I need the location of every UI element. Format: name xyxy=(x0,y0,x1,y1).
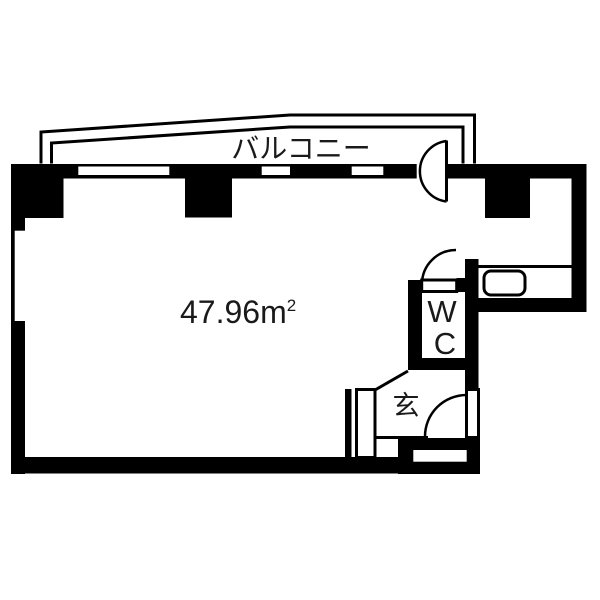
pier-middle xyxy=(185,164,232,218)
front-door-leaf xyxy=(467,390,479,438)
pier-right xyxy=(485,164,530,218)
wc-label-c: C xyxy=(434,326,456,361)
kitchen-sink xyxy=(484,271,525,295)
floor-plan: バルコニー 47.96m2 W C 玄 xyxy=(0,0,600,600)
wc-left-wall xyxy=(408,280,422,370)
entrance-label: 玄 xyxy=(393,391,420,421)
area-exponent: 2 xyxy=(287,296,296,315)
kitchen-south-wall xyxy=(478,298,587,312)
window-left xyxy=(15,231,25,321)
front-door-swing-arc xyxy=(425,395,467,437)
window-top-1 xyxy=(78,167,169,176)
window-top-2 xyxy=(262,167,290,176)
entrance-diagonal-wall xyxy=(375,371,408,390)
room-corner-stub xyxy=(345,389,352,458)
area-unit: m xyxy=(260,294,287,330)
area-label: 47.96m2 xyxy=(180,294,296,330)
area-value: 47.96 xyxy=(180,294,260,330)
entrance-shoe-cabinet xyxy=(357,390,376,458)
right-wall xyxy=(572,164,587,312)
wc-label-w: W xyxy=(427,294,457,329)
balcony-label: バルコニー xyxy=(231,133,370,164)
window-top-3 xyxy=(352,167,384,176)
wc-door-leaf xyxy=(422,280,457,292)
floor-plan-canvas: バルコニー 47.96m2 W C 玄 xyxy=(0,0,600,600)
entrance-step-slot xyxy=(413,450,466,462)
